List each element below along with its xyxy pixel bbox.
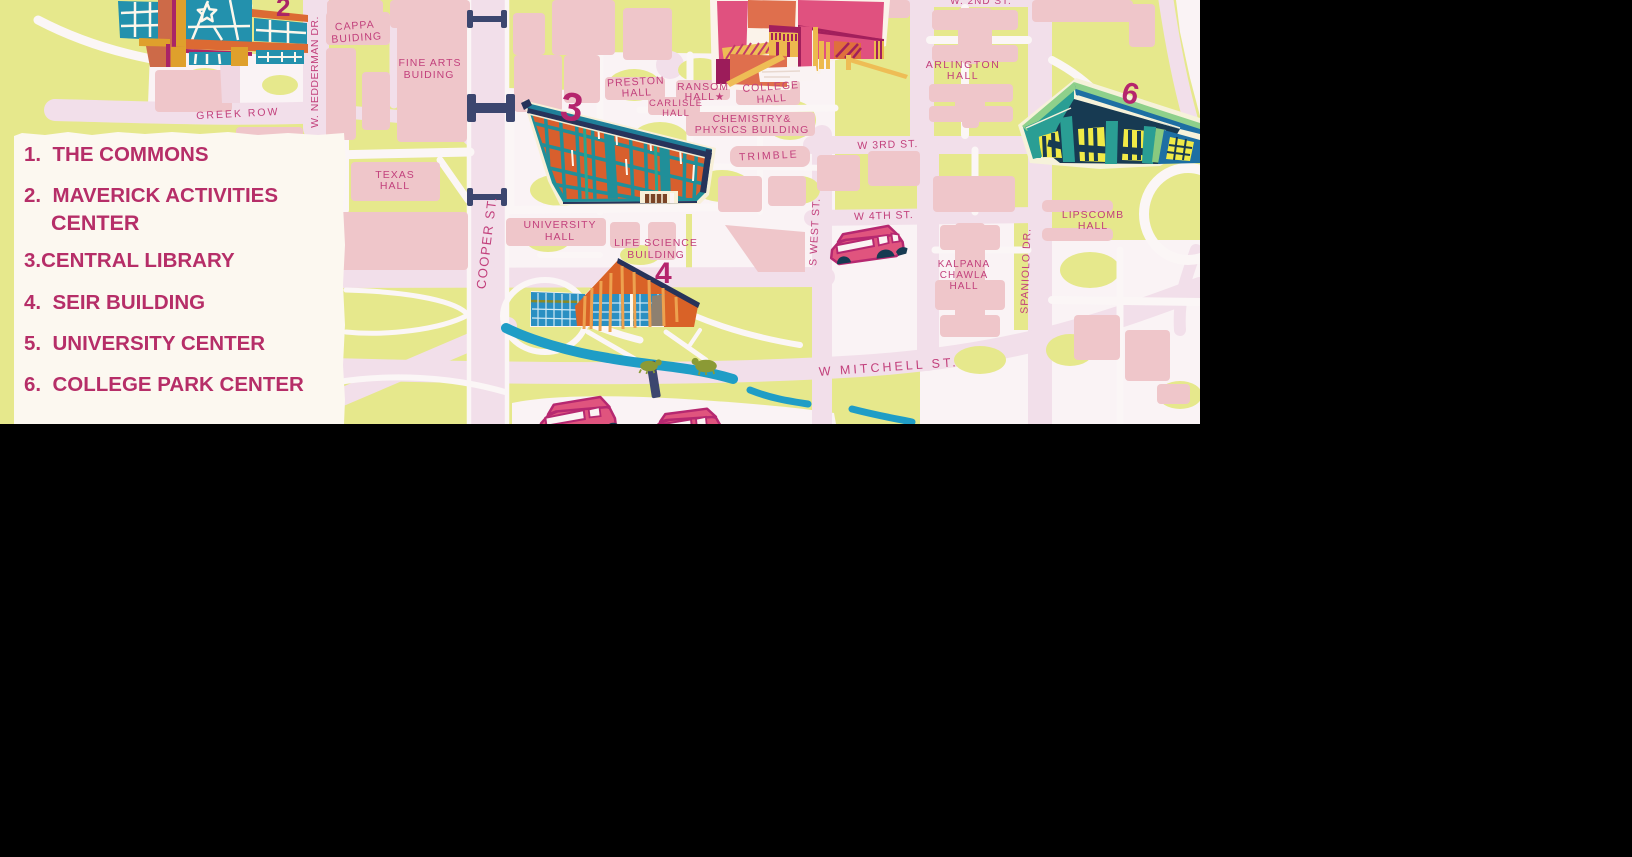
svg-text:FINE ARTS: FINE ARTS	[398, 57, 461, 69]
svg-text:HALL: HALL	[756, 92, 787, 106]
svg-text:HALL: HALL	[949, 281, 978, 292]
svg-text:BUILDING: BUILDING	[627, 249, 685, 261]
svg-text:W. 2ND ST.: W. 2ND ST.	[950, 0, 1012, 7]
svg-text:6. COLLEGE PARK CENTER: 6. COLLEGE PARK CENTER	[24, 373, 304, 396]
svg-text:HALL: HALL	[1078, 220, 1108, 232]
svg-text:BUIDING: BUIDING	[404, 69, 455, 81]
svg-text:UNIVERSITY: UNIVERSITY	[523, 219, 596, 231]
svg-text:HALL: HALL	[621, 86, 652, 100]
svg-text:1. THE COMMONS: 1. THE COMMONS	[24, 143, 209, 166]
svg-text:CENTER: CENTER	[51, 211, 140, 235]
svg-text:W. NEDDERMAN DR.: W. NEDDERMAN DR.	[309, 16, 321, 128]
svg-text:4. SEIR BUILDING: 4. SEIR BUILDING	[24, 291, 205, 314]
svg-text:CHAWLA: CHAWLA	[940, 270, 988, 281]
svg-text:W 4TH ST.: W 4TH ST.	[854, 209, 914, 223]
svg-text:HALL: HALL	[947, 70, 979, 82]
svg-text:2. MAVERICK ACTIVITIES: 2. MAVERICK ACTIVITIES	[24, 184, 278, 207]
svg-text:W 3RD ST.: W 3RD ST.	[857, 138, 918, 152]
svg-text:5. UNIVERSITY CENTER: 5. UNIVERSITY CENTER	[24, 332, 265, 355]
svg-text:PHYSICS BUILDING: PHYSICS BUILDING	[695, 124, 810, 136]
svg-text:LIFE SCIENCE: LIFE SCIENCE	[614, 237, 698, 249]
svg-text:4: 4	[655, 257, 672, 290]
svg-text:HALL: HALL	[380, 180, 410, 192]
svg-text:2: 2	[276, 0, 290, 22]
svg-text:3.CENTRAL LIBRARY: 3.CENTRAL LIBRARY	[24, 249, 235, 272]
svg-text:KALPANA: KALPANA	[938, 259, 990, 270]
svg-text:HALL: HALL	[662, 108, 690, 119]
svg-text:HALL: HALL	[545, 231, 575, 243]
